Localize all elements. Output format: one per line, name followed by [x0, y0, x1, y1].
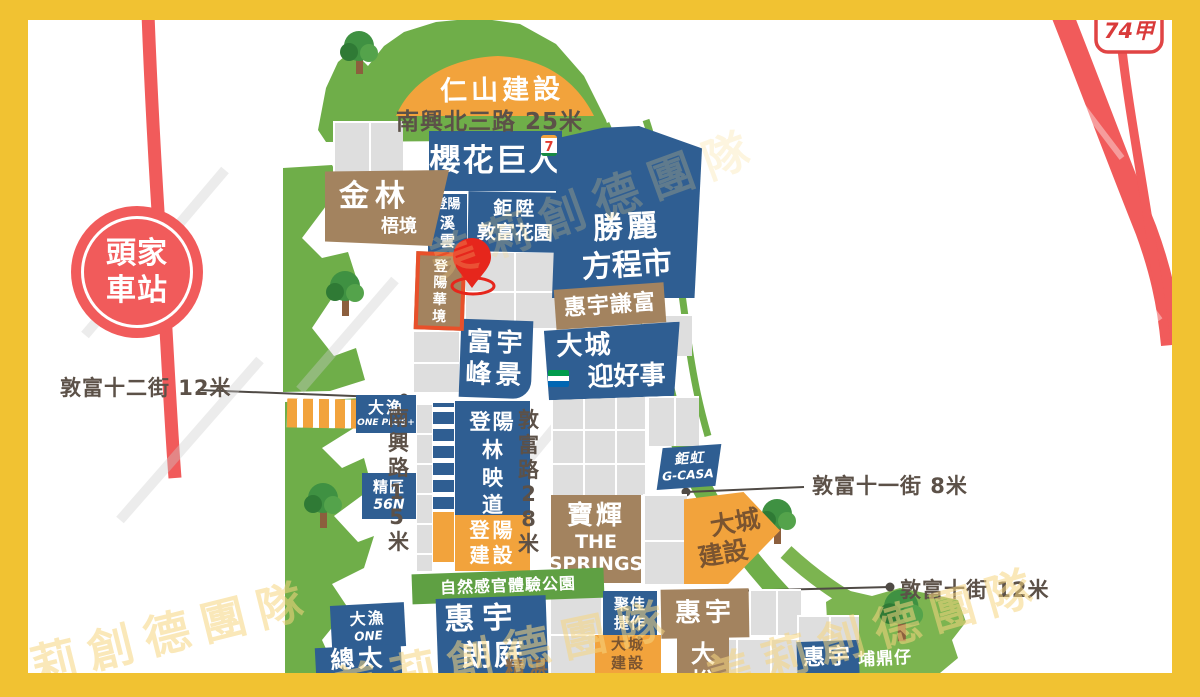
- striped-lot-orange: [287, 398, 357, 428]
- block-label: 寶輝: [567, 502, 625, 532]
- station-badge: 頭家車站: [71, 206, 203, 338]
- vacant-lot: [412, 330, 459, 392]
- vacant-lot: [643, 494, 687, 584]
- road-label-dunfu-rd: 敦富路28米: [518, 406, 540, 557]
- block-label: 方程市: [581, 244, 673, 286]
- block-dacheng-ying: 大城 迎好事: [544, 322, 682, 401]
- block-label: 惠宇: [675, 597, 736, 631]
- frame-left: [0, 0, 28, 697]
- vacant-lot: [551, 395, 645, 495]
- block-label-top: 登陽: [470, 409, 516, 435]
- block-label: 惠宇謙富: [563, 289, 657, 323]
- road-label-text: 南興路15米: [388, 406, 406, 555]
- seven-eleven-icon: 7: [541, 135, 557, 156]
- road-label-dunfu-11st: 敦富十一街 8米: [812, 470, 968, 500]
- road-label-text: 敦富十二街 12米: [60, 376, 232, 400]
- road-label-text: 南興北三路 25米: [396, 109, 583, 135]
- block-label: G-CASA: [661, 466, 715, 485]
- striped-building-orange: [433, 512, 454, 562]
- seven-eleven-glyph: 7: [544, 140, 553, 155]
- road-label-text: 敦富路28米: [518, 408, 540, 557]
- block-juhong: 鉅虹 G-CASA: [657, 444, 722, 490]
- block-fuyu: 富宇 峰景: [459, 319, 534, 399]
- frame-top: [0, 0, 1200, 20]
- road-label-dunfu-12st: 敦富十二街 12米: [60, 372, 232, 402]
- familymart-icon: [548, 370, 569, 387]
- striped-building-blue: [433, 403, 454, 509]
- map-canvas: 74甲: [0, 0, 1200, 697]
- block-label: 大漁: [349, 608, 386, 630]
- familymart-blue-stripe: [548, 381, 569, 387]
- expressway-sign-text: 74甲: [1104, 19, 1156, 43]
- vacant-lot: [647, 396, 699, 446]
- road-label-nanxing-north3: 南興北三路 25米: [396, 102, 583, 136]
- road-label-text: 敦富十一街 8米: [812, 474, 968, 498]
- road-label-nanxing: 南興路15米: [388, 404, 406, 555]
- block-label: THE: [575, 532, 617, 554]
- vacant-lot: [333, 121, 403, 173]
- block-label: 建設: [470, 543, 516, 568]
- block-huiyu-qianfu: 惠宇謙富: [554, 282, 667, 330]
- frame-right: [1172, 0, 1200, 697]
- block-label: 建設: [696, 534, 751, 573]
- block-label: ONE: [354, 628, 383, 644]
- park-label: 自然感官體驗公園: [440, 574, 577, 599]
- block-label: 迎好事: [587, 359, 666, 394]
- block-label: 梧境: [381, 216, 417, 239]
- block-label: 大城: [556, 329, 613, 363]
- frame-bottom: [0, 673, 1200, 697]
- station-badge-ring: [81, 216, 193, 328]
- block-label: 富宇: [466, 325, 527, 360]
- block-label: 峰景: [465, 358, 526, 393]
- block-label: 金林: [339, 178, 411, 216]
- block-label-vertical: 林映道: [482, 437, 504, 519]
- block-label: 登陽: [470, 518, 516, 543]
- block-yinghua: 櫻花巨人 7: [429, 131, 562, 191]
- vacant-lot: [415, 403, 432, 571]
